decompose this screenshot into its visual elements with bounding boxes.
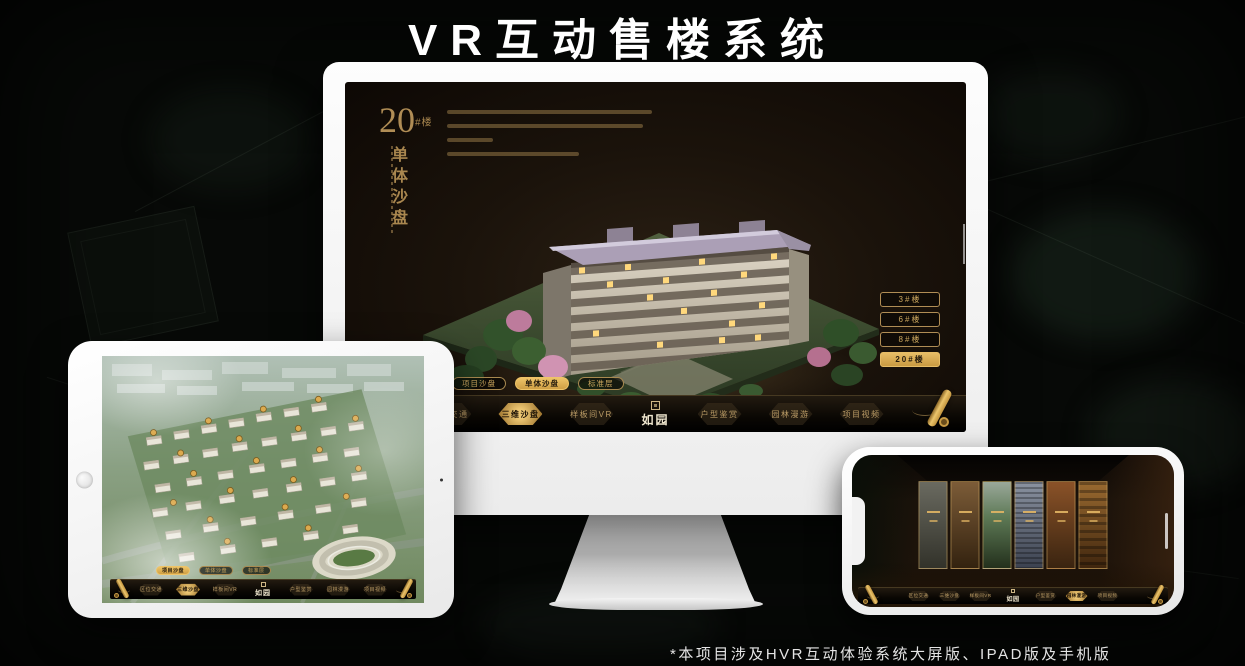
- building-button-group: 3#楼 6#楼 8#楼 20#楼: [880, 292, 940, 367]
- ipad-home-button[interactable]: [76, 471, 93, 488]
- nav-item-3d-sandbox[interactable]: 三维沙盘: [491, 401, 549, 427]
- tab-standard-floor[interactable]: 标准层: [242, 566, 271, 575]
- nav-item-location[interactable]: 区位交通: [905, 590, 931, 602]
- brand-logo: 如园: [1006, 589, 1019, 603]
- nav-item-project-video[interactable]: 项目视频: [1095, 590, 1121, 602]
- scene-card[interactable]: [983, 481, 1012, 569]
- brand-logo: 如园: [641, 401, 669, 428]
- building-button-20[interactable]: 20#楼: [880, 352, 940, 367]
- scroll-icon[interactable]: [396, 580, 414, 598]
- ipad-screen: 项目沙盘 单体沙盘 标准层 区位交通 三维沙盘 样板间VR 如园 户型鉴赏 园林…: [102, 356, 424, 603]
- nav-item-showroom-vr[interactable]: 样板间VR: [210, 583, 240, 597]
- building-number: 20: [379, 100, 415, 140]
- footnote: *本项目涉及HVR互动体验系统大屏版、IPAD版及手机版: [670, 643, 1111, 664]
- scene-card[interactable]: [951, 481, 980, 569]
- background-foliage-blob: [150, 90, 310, 190]
- sub-tab-bar: 项目沙盘 单体沙盘 标准层: [452, 377, 624, 390]
- monitor-stand-base: [549, 598, 763, 610]
- ipad-camera-icon: [440, 478, 443, 481]
- scroll-icon[interactable]: [861, 586, 879, 604]
- background-plaque: [67, 206, 219, 348]
- ipad: 项目沙盘 单体沙盘 标准层 区位交通 三维沙盘 样板间VR 如园 户型鉴赏 园林…: [68, 341, 454, 618]
- scroll-icon[interactable]: [112, 580, 130, 598]
- scene-card[interactable]: [919, 481, 948, 569]
- phone-screen: 区位交通 三维沙盘 样板间VR 如园 户型鉴赏 园林漫游 项目视频: [852, 455, 1174, 607]
- tab-project-sandbox[interactable]: 项目沙盘: [156, 566, 190, 575]
- background-foliage-blob: [980, 70, 1120, 160]
- decorative-english-bar: [391, 146, 393, 236]
- seal-icon: [651, 401, 660, 410]
- nav-item-project-video[interactable]: 项目视频: [360, 583, 390, 597]
- nav-item-showroom-vr[interactable]: 样板间VR: [562, 401, 620, 427]
- scene-gallery: [919, 481, 1108, 569]
- scene-card[interactable]: [1079, 481, 1108, 569]
- tab-single-sandbox[interactable]: 单体沙盘: [515, 377, 569, 390]
- scene-card[interactable]: [1047, 481, 1076, 569]
- tab-standard-floor[interactable]: 标准层: [578, 377, 624, 390]
- monitor-stand: [555, 510, 755, 602]
- main-nav-bar: 区位交通 三维沙盘 样板间VR 如园 户型鉴赏 园林漫游 项目视频: [110, 579, 416, 599]
- scroll-icon[interactable]: [912, 391, 954, 427]
- nav-item-garden-tour[interactable]: 园林漫游: [323, 583, 353, 597]
- seal-icon: [261, 582, 266, 587]
- building-button-8[interactable]: 8#楼: [880, 332, 940, 347]
- page-title: VR互动售楼系统: [0, 4, 1245, 68]
- nav-item-garden-tour[interactable]: 园林漫游: [1064, 590, 1090, 602]
- nav-item-location[interactable]: 区位交通: [136, 583, 166, 597]
- interior-roof-eaves: [897, 455, 1129, 483]
- building-number-unit: #楼: [415, 118, 433, 129]
- phone-home-indicator[interactable]: [1165, 513, 1168, 549]
- nav-item-garden-tour[interactable]: 园林漫游: [762, 401, 820, 427]
- sub-tab-bar: 项目沙盘 单体沙盘 标准层: [156, 566, 271, 575]
- brand-logo: 如园: [255, 582, 271, 598]
- main-nav-bar: 区位交通 三维沙盘 样板间VR 如园 户型鉴赏 园林漫游 项目视频: [858, 587, 1168, 604]
- scene-card[interactable]: [1015, 481, 1044, 569]
- nav-item-floorplans[interactable]: 户型鉴赏: [691, 401, 749, 427]
- phone-notch: [852, 497, 865, 565]
- screen-subtitle: 单体沙盘: [385, 146, 409, 230]
- background-foliage-blob: [1010, 210, 1200, 340]
- nav-item-floorplans[interactable]: 户型鉴赏: [286, 583, 316, 597]
- phone: 区位交通 三维沙盘 样板间VR 如园 户型鉴赏 园林漫游 项目视频: [842, 447, 1184, 615]
- nav-item-project-video[interactable]: 项目视频: [833, 401, 891, 427]
- nav-item-showroom-vr[interactable]: 样板间VR: [967, 590, 993, 602]
- nav-item-3d-sandbox[interactable]: 三维沙盘: [173, 583, 203, 597]
- seal-icon: [1011, 589, 1015, 593]
- tab-project-sandbox[interactable]: 项目沙盘: [452, 377, 506, 390]
- tab-single-sandbox[interactable]: 单体沙盘: [199, 566, 233, 575]
- building-button-3[interactable]: 3#楼: [880, 292, 940, 307]
- scroll-icon[interactable]: [1147, 586, 1165, 604]
- screen-scrollbar[interactable]: [963, 224, 965, 264]
- nav-item-floorplans[interactable]: 户型鉴赏: [1033, 590, 1059, 602]
- nav-item-3d-sandbox[interactable]: 三维沙盘: [936, 590, 962, 602]
- building-model: [411, 137, 891, 417]
- building-button-6[interactable]: 6#楼: [880, 312, 940, 327]
